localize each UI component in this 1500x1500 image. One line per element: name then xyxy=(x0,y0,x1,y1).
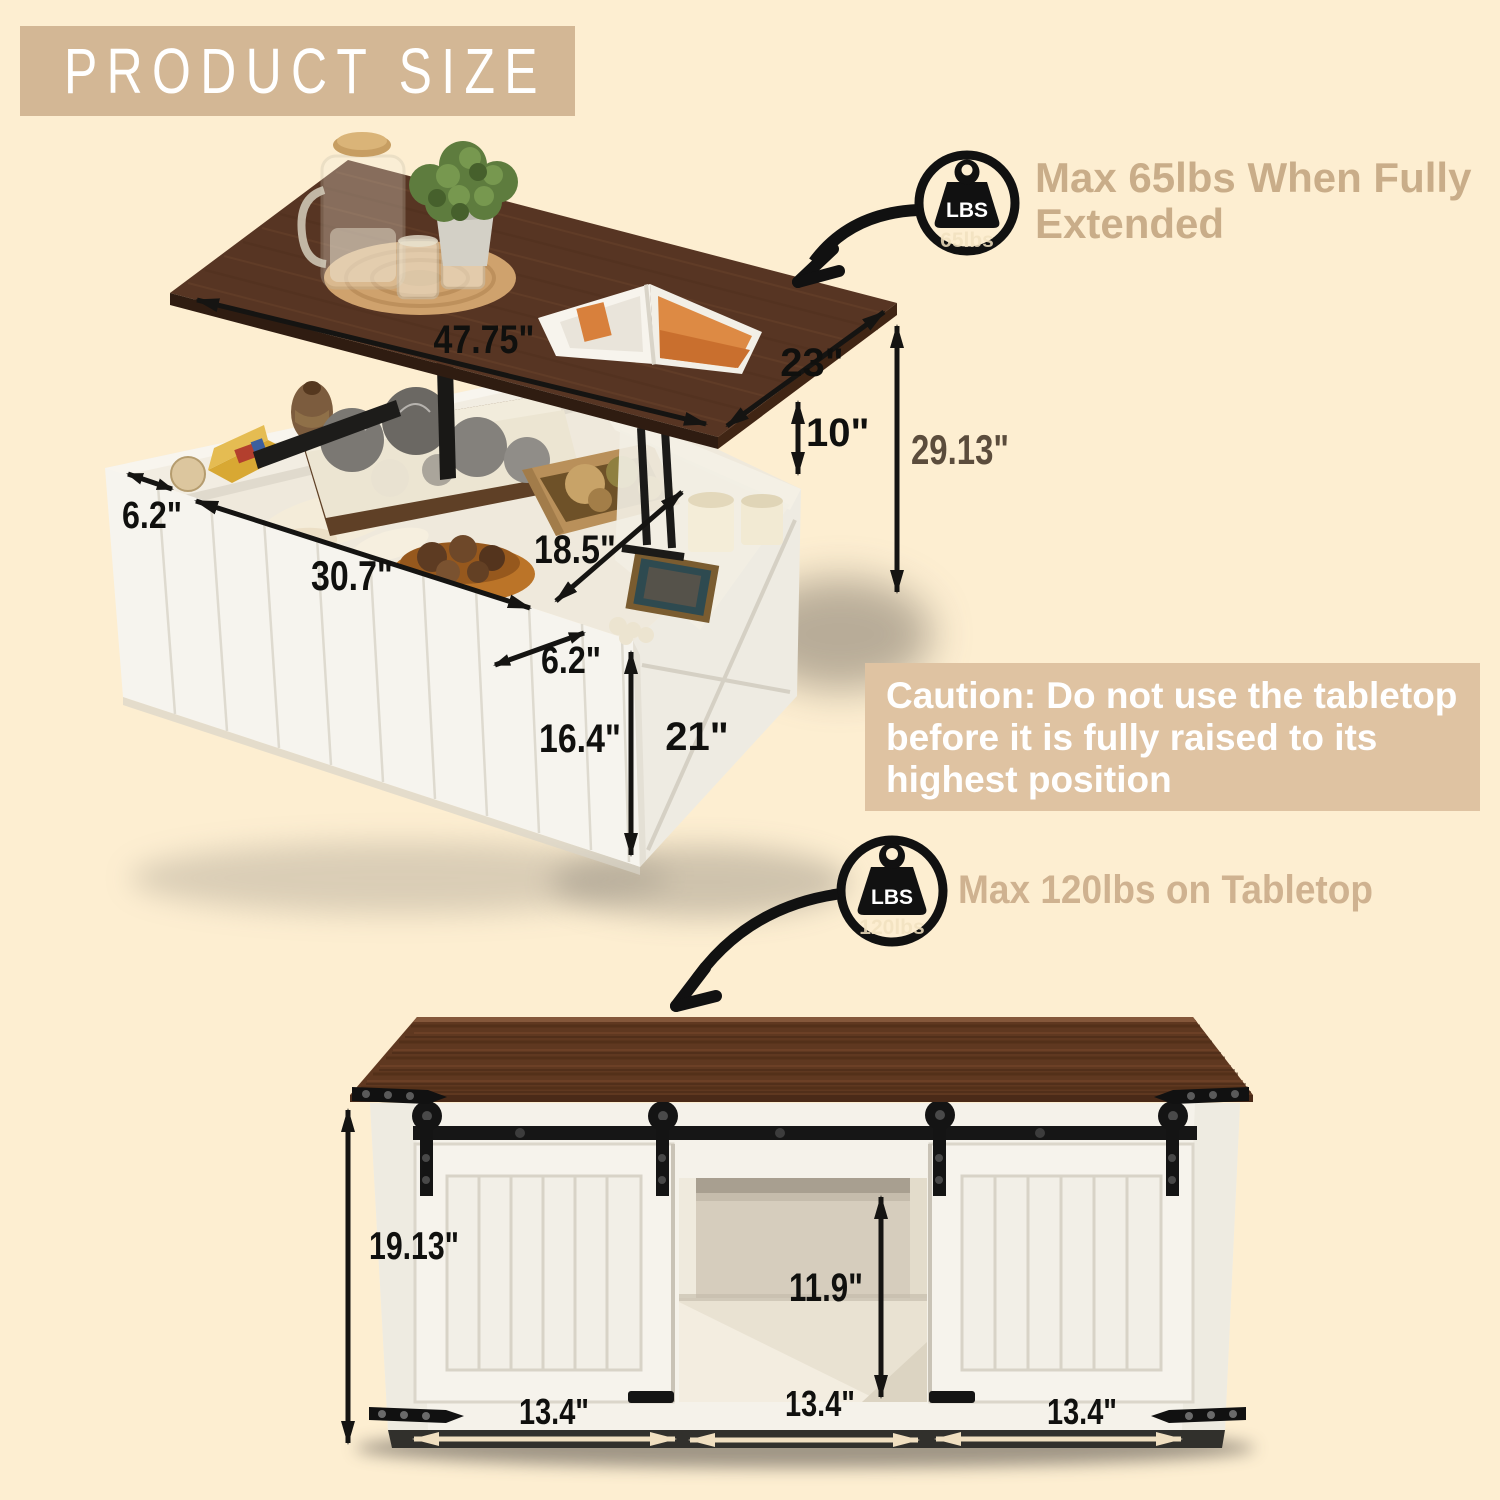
svg-text:LBS: LBS xyxy=(946,199,988,222)
svg-text:19.13": 19.13" xyxy=(369,1225,459,1268)
svg-text:LBS: LBS xyxy=(871,886,913,909)
svg-text:10": 10" xyxy=(806,411,869,455)
svg-text:Max 65lbs When Fully: Max 65lbs When Fully xyxy=(1035,154,1472,201)
svg-text:6.2": 6.2" xyxy=(541,640,601,682)
svg-text:11.9": 11.9" xyxy=(789,1266,863,1310)
svg-text:PRODUCT SIZE: PRODUCT SIZE xyxy=(64,36,547,107)
svg-text:65lbs: 65lbs xyxy=(940,229,994,252)
svg-text:6.2": 6.2" xyxy=(122,495,182,537)
svg-text:47.75": 47.75" xyxy=(434,318,535,362)
svg-text:13.4": 13.4" xyxy=(785,1383,855,1424)
svg-text:120lbs: 120lbs xyxy=(859,916,924,939)
svg-text:16.4": 16.4" xyxy=(539,717,621,761)
svg-text:Caution: Do not use the tablet: Caution: Do not use the tabletop xyxy=(886,675,1457,716)
svg-text:Extended: Extended xyxy=(1035,200,1224,247)
svg-text:highest position: highest position xyxy=(886,759,1172,800)
svg-text:Max 120lbs on Tabletop: Max 120lbs on Tabletop xyxy=(958,868,1373,912)
svg-text:13.4": 13.4" xyxy=(519,1391,589,1432)
svg-text:30.7": 30.7" xyxy=(311,552,393,599)
svg-text:21": 21" xyxy=(665,715,728,759)
svg-text:before it is fully raised to i: before it is fully raised to its xyxy=(886,717,1377,758)
svg-text:13.4": 13.4" xyxy=(1047,1391,1117,1432)
svg-text:23": 23" xyxy=(780,341,843,385)
svg-text:18.5": 18.5" xyxy=(534,528,616,572)
svg-text:29.13": 29.13" xyxy=(911,426,1009,473)
